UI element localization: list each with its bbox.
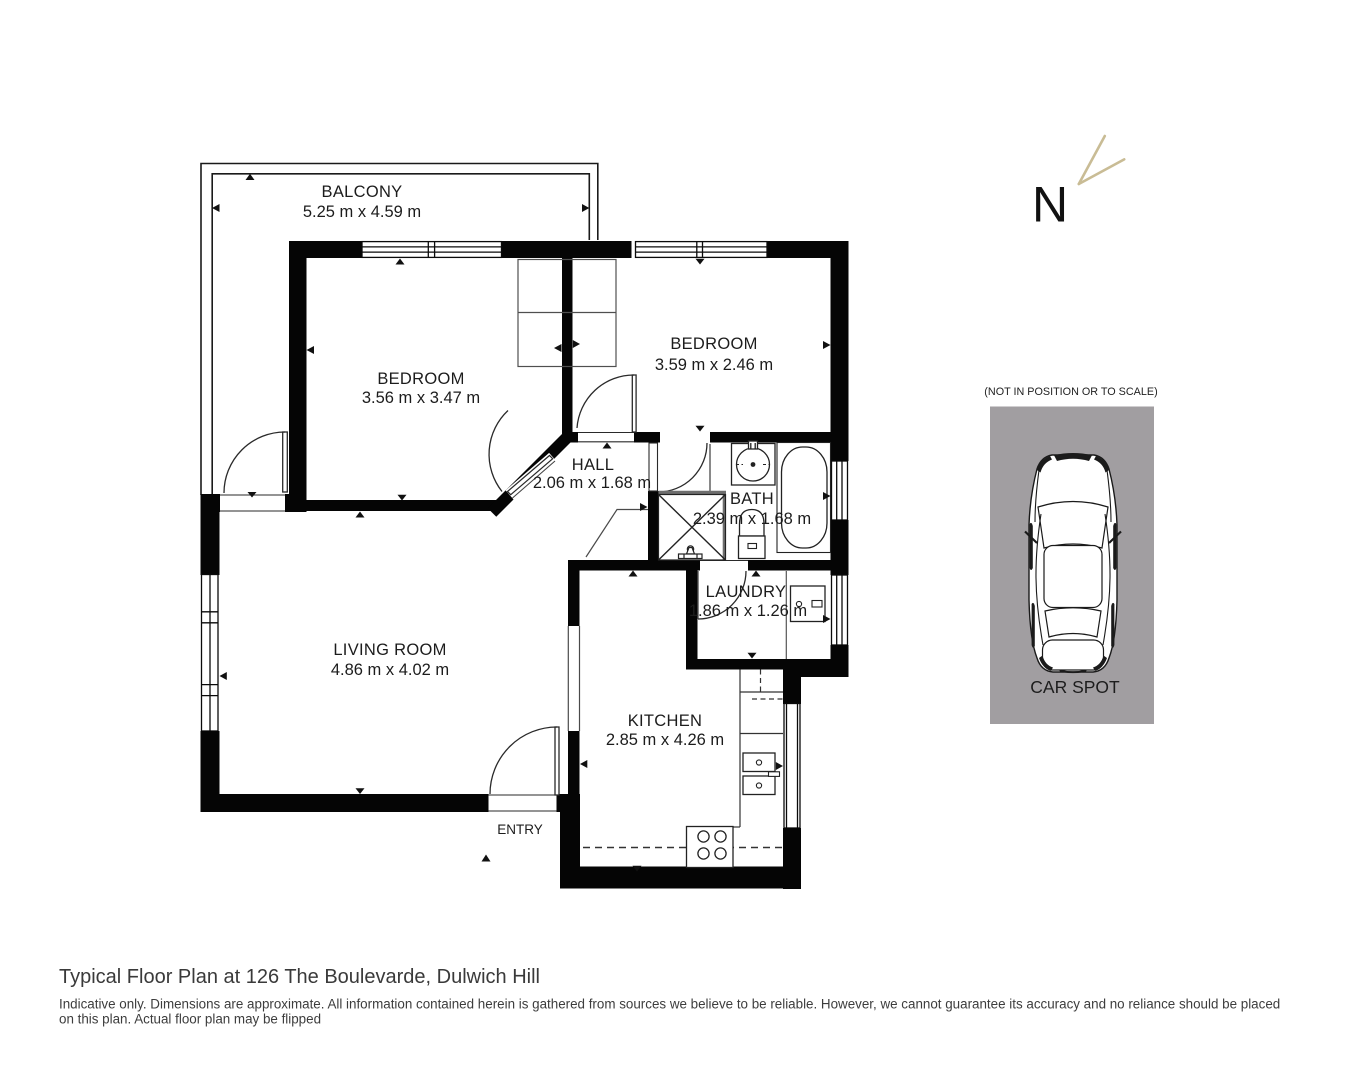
svg-text:HALL: HALL <box>572 456 614 474</box>
svg-text:1.86 m x 1.26 m: 1.86 m x 1.26 m <box>689 602 807 620</box>
svg-text:on this plan. Actual floor pla: on this plan. Actual floor plan may be f… <box>59 1012 321 1027</box>
svg-text:BALCONY: BALCONY <box>322 183 403 201</box>
svg-text:CAR SPOT: CAR SPOT <box>1030 677 1120 697</box>
svg-text:Typical Floor Plan at 126 The: Typical Floor Plan at 126 The Boulevarde… <box>59 966 540 988</box>
svg-text:ENTRY: ENTRY <box>497 822 543 837</box>
svg-text:3.59 m x 2.46 m: 3.59 m x 2.46 m <box>655 356 773 374</box>
svg-text:(NOT IN POSITION OR TO SCALE): (NOT IN POSITION OR TO SCALE) <box>984 386 1157 398</box>
svg-text:2.85 m x 4.26 m: 2.85 m x 4.26 m <box>606 731 724 749</box>
svg-text:KITCHEN: KITCHEN <box>628 712 703 730</box>
svg-text:BEDROOM: BEDROOM <box>670 335 757 353</box>
svg-text:2.06 m x 1.68 m: 2.06 m x 1.68 m <box>533 474 651 492</box>
svg-text:LIVING ROOM: LIVING ROOM <box>333 641 446 659</box>
svg-text:2.39 m x 1.68 m: 2.39 m x 1.68 m <box>693 510 811 528</box>
svg-text:BATH: BATH <box>730 490 774 508</box>
svg-text:4.86 m x 4.02 m: 4.86 m x 4.02 m <box>331 661 449 679</box>
svg-text:N: N <box>1032 177 1068 233</box>
svg-text:BEDROOM: BEDROOM <box>377 370 464 388</box>
svg-text:LAUNDRY: LAUNDRY <box>706 583 787 601</box>
svg-text:Indicative only. Dimensions ar: Indicative only. Dimensions are approxim… <box>59 997 1280 1012</box>
svg-text:5.25 m x 4.59 m: 5.25 m x 4.59 m <box>303 203 421 221</box>
svg-text:3.56 m x 3.47 m: 3.56 m x 3.47 m <box>362 389 480 407</box>
